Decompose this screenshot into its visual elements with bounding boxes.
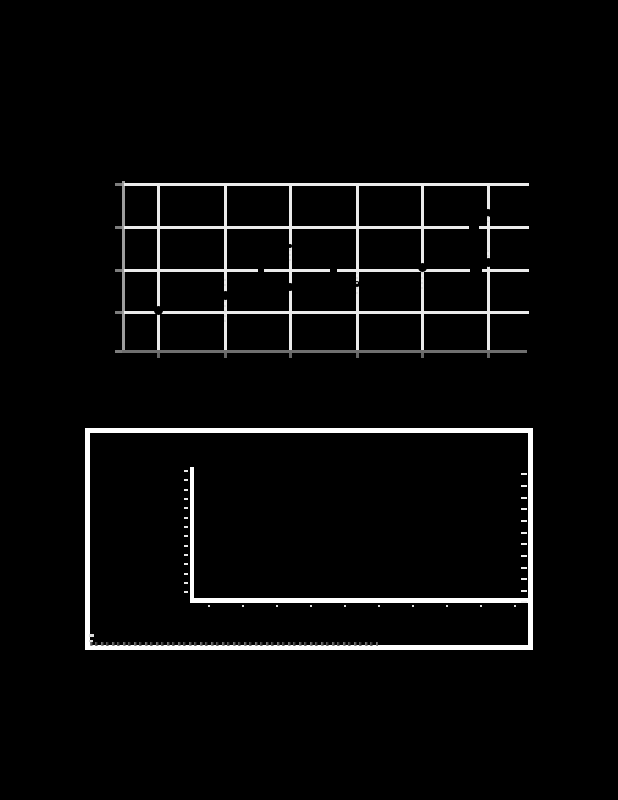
y-axis-tick [184,554,188,556]
h-gridline [124,311,529,314]
errorbar-dash-remnant [487,216,489,222]
y-axis-tick [184,573,188,575]
y-tick-mark [115,183,122,186]
errorbar-dash-remnant [356,272,358,296]
right-edge-tick [521,485,527,487]
y-axis-tick [184,470,188,472]
illegible-caption-speckle [90,642,378,646]
y-axis-tick [184,526,188,528]
data-point-dot [154,306,163,315]
figure-frame [85,428,533,650]
right-edge-tick [521,555,527,557]
y-tick-mark [115,269,122,272]
y-axis-line [190,467,194,603]
right-edge-tick [521,590,527,592]
line-crossing-nick [470,267,482,272]
inverted-document-page [0,0,618,800]
left-spine [122,181,125,353]
x-axis-tick [344,605,346,607]
y-axis-tick [184,498,188,500]
y-axis-tick [184,489,188,491]
y-axis-tick [184,479,188,481]
x-tick-mark [356,353,359,358]
right-edge-tick [521,508,527,510]
left-edge-mark [89,634,94,637]
right-edge-tick [521,520,527,522]
x-axis-tick [378,605,380,607]
x-tick-mark [224,353,227,358]
x-axis-tick [276,605,278,607]
x-tick-mark [421,353,424,358]
x-tick-mark [289,353,292,358]
y-axis-tick [184,507,188,509]
right-edge-tick [521,578,527,580]
v-gridline [157,183,160,350]
x-axis-tick [446,605,448,607]
data-point-dot [286,283,294,291]
h-gridline [124,269,529,272]
x-axis-tick [514,605,516,607]
right-edge-tick [521,543,527,545]
errorbar-dash-remnant [421,272,423,290]
right-edge-tick [521,567,527,569]
line-crossing-nick [258,268,264,272]
x-axis-line [190,598,528,603]
line-crossing-nick [469,224,479,229]
data-point-dot [221,291,230,300]
h-gridline [124,183,529,186]
y-axis-tick [184,563,188,565]
y-axis-tick [184,582,188,584]
line-crossing-nick [330,268,337,272]
data-point-dot [288,244,292,248]
v-gridline [289,183,292,350]
y-tick-mark [115,226,122,229]
errorbar-dash-remnant [289,249,291,262]
x-axis-tick [242,605,244,607]
errorbar-dash-remnant [487,250,489,258]
right-edge-tick [521,532,527,534]
right-edge-tick [521,497,527,499]
data-point-dot [484,258,493,267]
x-tick-mark [157,353,160,358]
v-gridline [356,183,359,350]
data-point-dot [418,263,427,272]
x-axis-tick [412,605,414,607]
v-gridline [224,183,227,350]
bottom-spine [122,350,527,353]
y-axis-tick [184,591,188,593]
y-axis-tick [184,535,188,537]
errorbar-dash-remnant [224,300,226,322]
right-edge-tick [521,601,527,603]
y-tick-mark [115,311,122,314]
right-edge-tick [521,473,527,475]
x-axis-tick [310,605,312,607]
x-tick-mark [487,353,490,358]
x-axis-tick [480,605,482,607]
x-axis-tick [208,605,210,607]
left-edge-mark [89,640,93,642]
y-axis-tick [184,545,188,547]
y-axis-tick [184,517,188,519]
figure1-grid-chart [0,0,618,400]
errorbar-dash-remnant [224,279,226,288]
y-tick-mark [115,350,122,353]
